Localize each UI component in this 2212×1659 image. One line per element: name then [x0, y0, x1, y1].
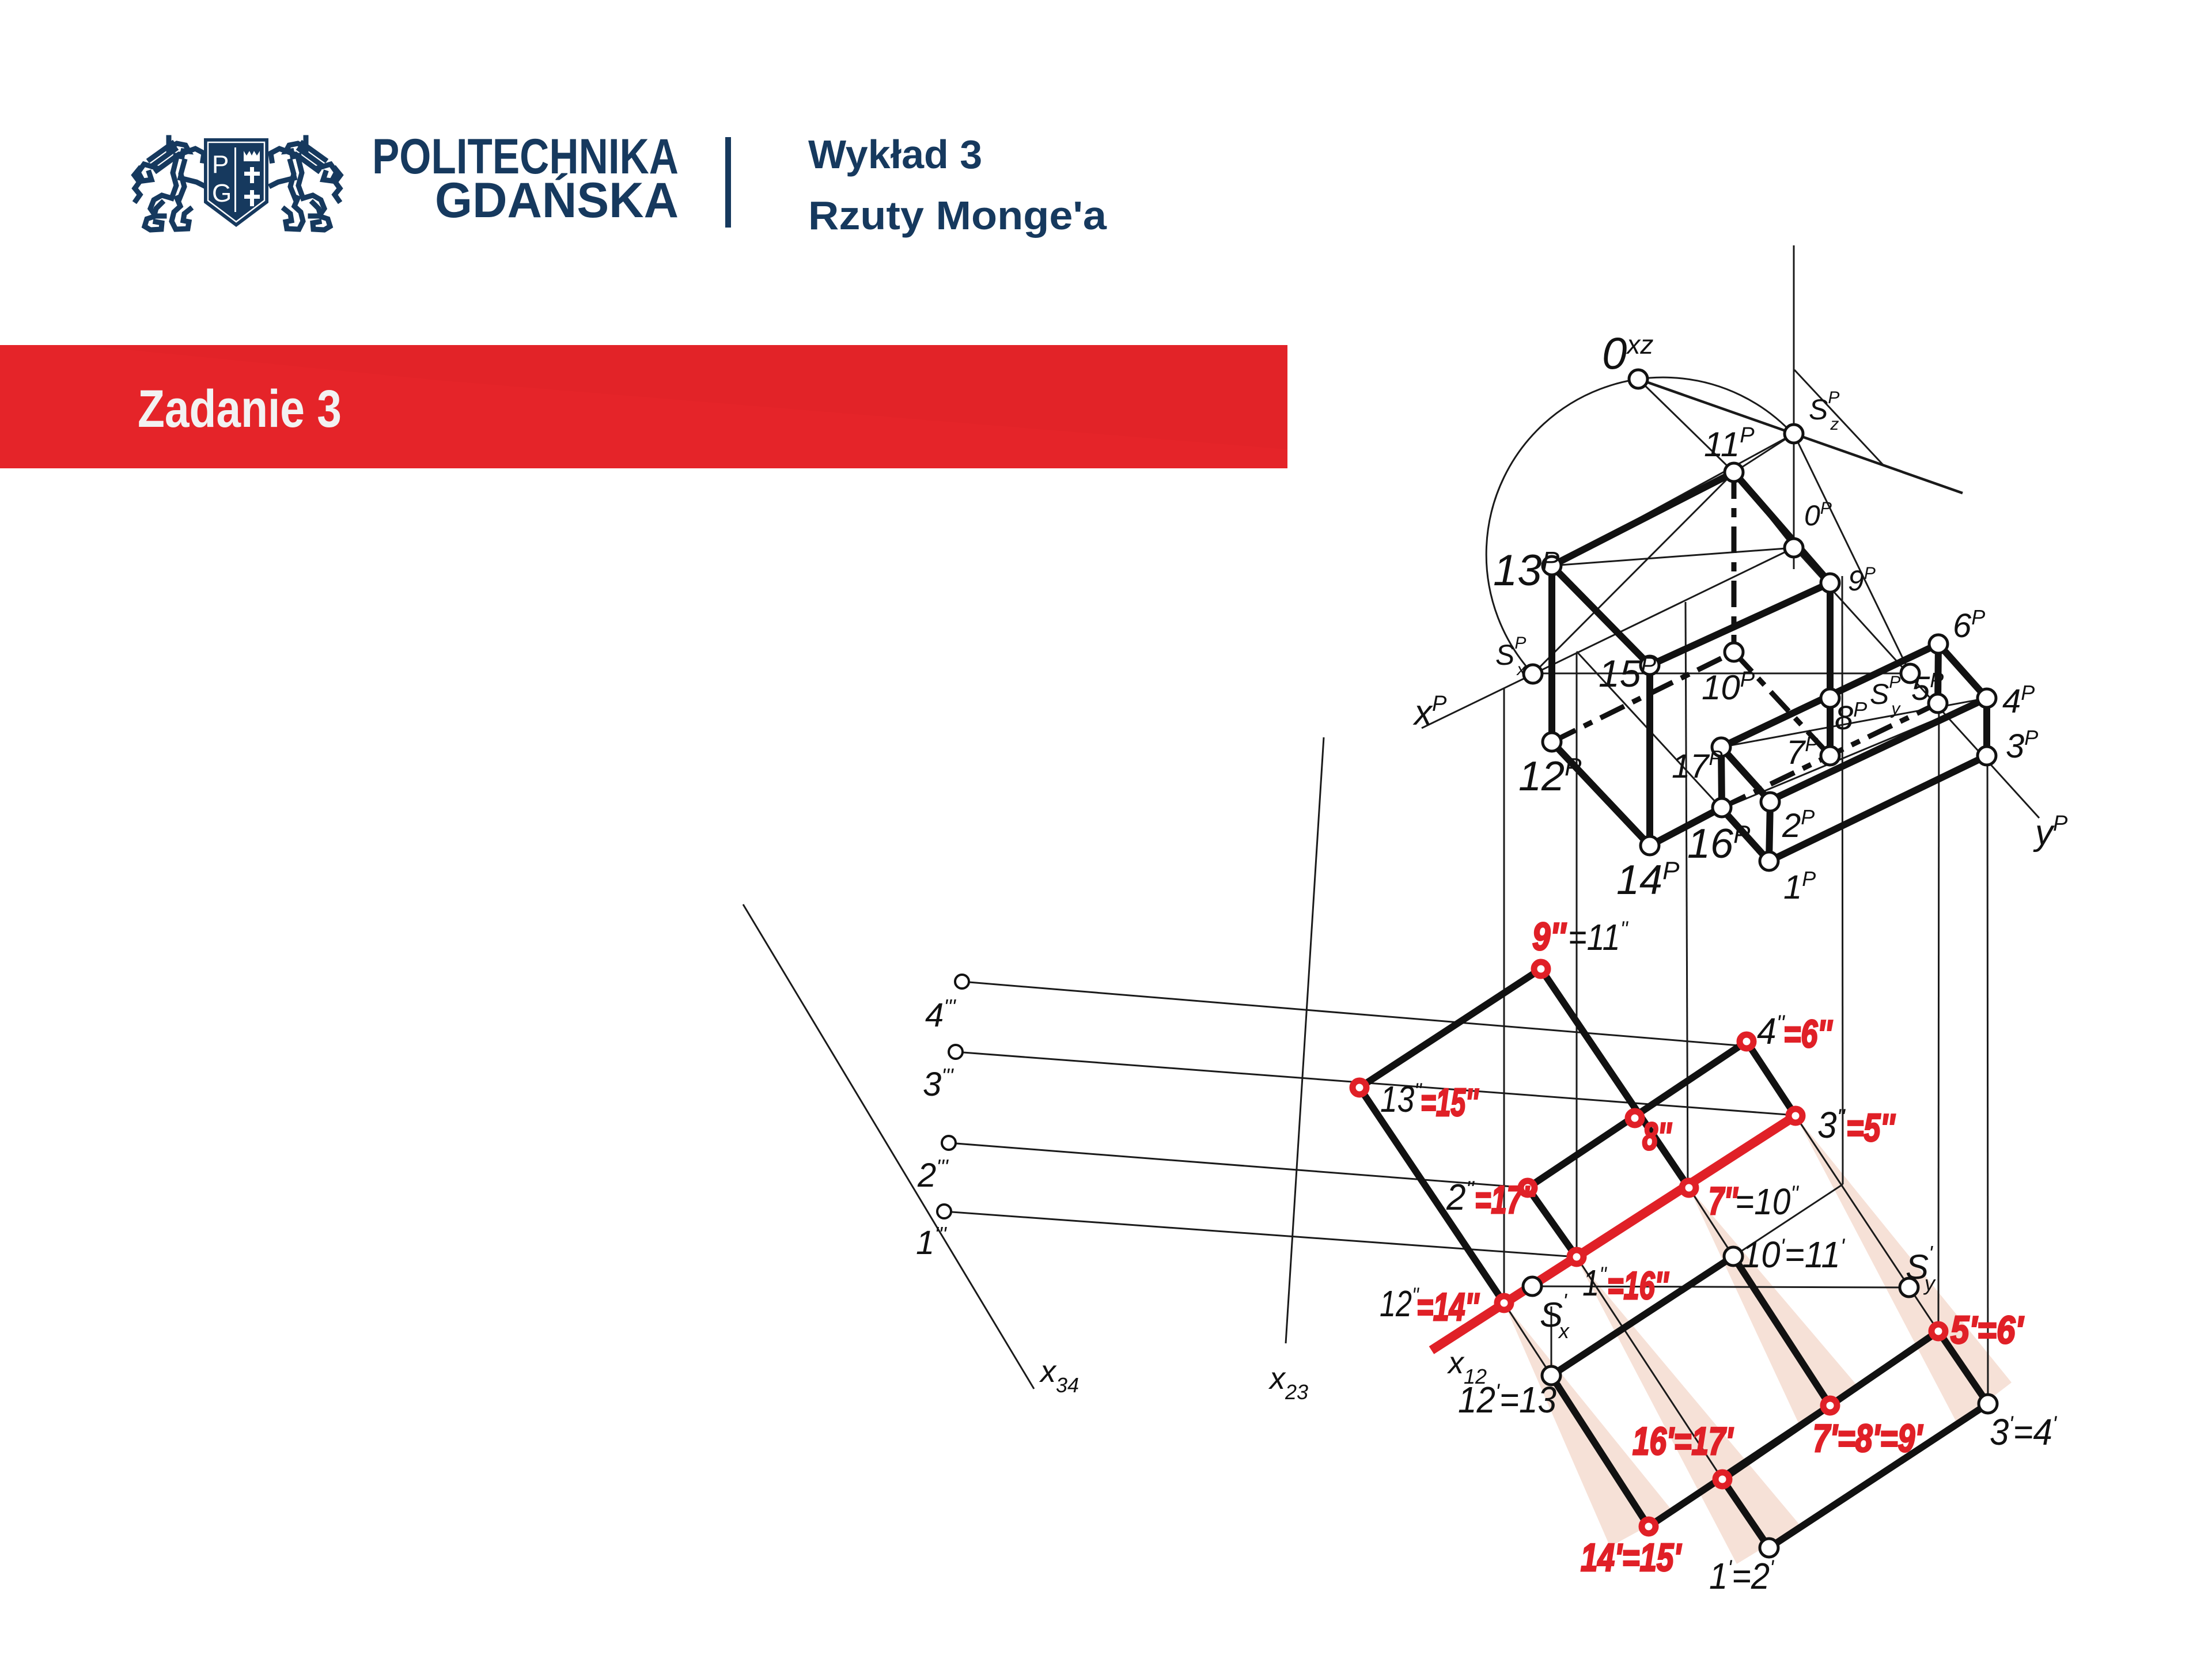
svg-text:=14'': =14'' [1416, 1285, 1480, 1329]
svg-text:G: G [212, 179, 232, 207]
svg-text:=15'': =15'' [1421, 1081, 1479, 1124]
svg-text:=6'': =6'' [1783, 1012, 1833, 1056]
svg-text:=10'': =10'' [1735, 1181, 1799, 1222]
svg-text:16'=17': 16'=17' [1633, 1419, 1734, 1463]
svg-text:7'=8'=9': 7'=8'=9' [1813, 1416, 1923, 1460]
svg-text:P: P [212, 150, 229, 179]
svg-text:3'=4': 3'=4' [1990, 1411, 2057, 1453]
svg-text:GDAŃSKA: GDAŃSKA [435, 173, 679, 228]
svg-text:10'=11': 10'=11' [1742, 1234, 1845, 1275]
svg-text:5'=6': 5'=6' [1950, 1308, 2024, 1352]
svg-text:14'=15': 14'=15' [1581, 1536, 1682, 1580]
svg-text:7'': 7'' [1709, 1179, 1738, 1223]
svg-text:8'': 8'' [1642, 1115, 1672, 1158]
svg-text:Rzuty Monge'a: Rzuty Monge'a [808, 193, 1107, 238]
svg-text:1'=2': 1'=2' [1709, 1555, 1774, 1597]
svg-text:12'=13': 12'=13' [1458, 1379, 1561, 1421]
svg-text:=17'': =17'' [1475, 1178, 1537, 1222]
svg-text:9'': 9'' [1532, 915, 1567, 959]
svg-text:=5'': =5'' [1846, 1106, 1896, 1150]
svg-text:Wykład 3: Wykład 3 [808, 132, 982, 177]
svg-text:=16'': =16'' [1607, 1264, 1669, 1308]
svg-text:Zadanie 3: Zadanie 3 [138, 380, 342, 438]
svg-text:=11'': =11'' [1568, 916, 1628, 958]
